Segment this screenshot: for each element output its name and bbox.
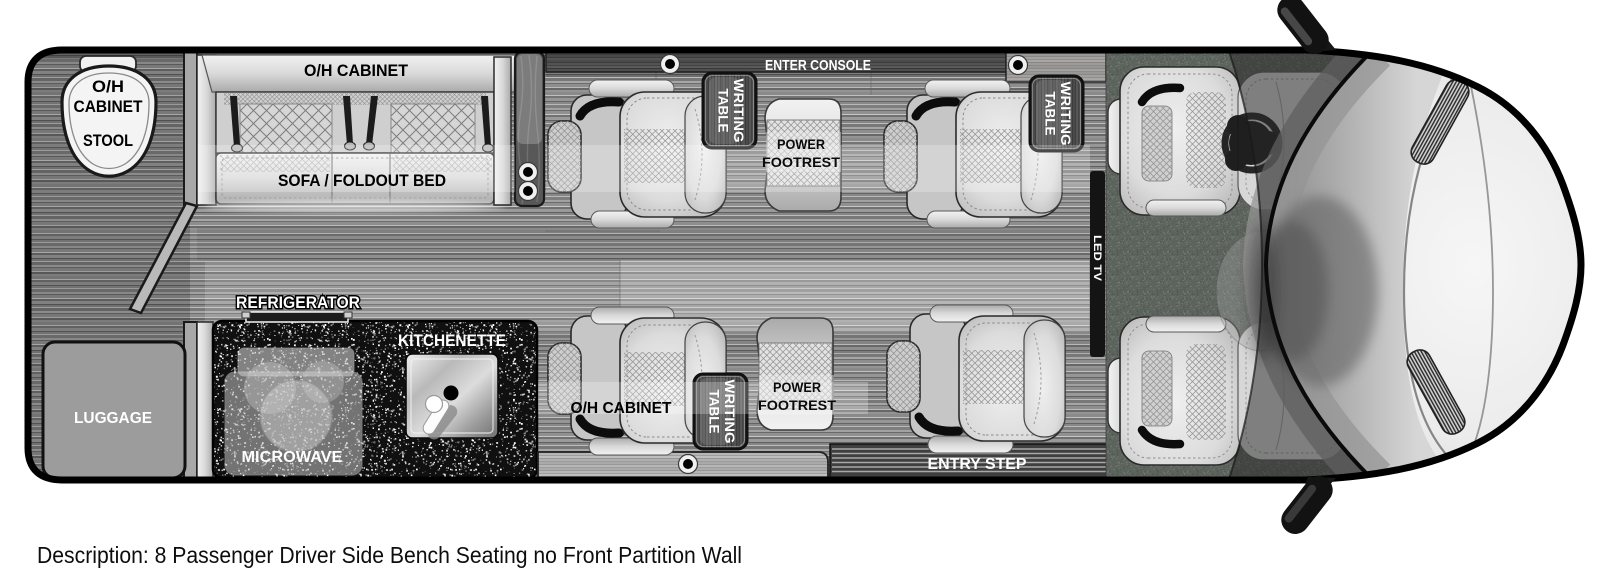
svg-text:O/H CABINET: O/H CABINET [304,62,408,80]
svg-text:ENTRY STEP: ENTRY STEP [928,456,1027,473]
svg-text:LED TV: LED TV [1091,235,1103,282]
svg-text:FOOTREST: FOOTREST [762,154,840,170]
svg-text:MICROWAVE: MICROWAVE [242,449,343,466]
svg-text:Description: 8 Passenger Drive: Description: 8 Passenger Driver Side Ben… [37,542,742,568]
svg-text:CABINET: CABINET [74,98,143,116]
svg-text:SOFA / FOLDOUT BED: SOFA / FOLDOUT BED [278,171,446,190]
svg-text:KITCHENETTE: KITCHENETTE [398,332,506,350]
svg-text:O/H: O/H [92,78,124,96]
svg-text:POWER: POWER [777,136,825,152]
svg-text:POWER: POWER [773,379,821,395]
svg-text:O/H CABINET: O/H CABINET [571,400,672,417]
svg-text:STOOL: STOOL [83,132,133,150]
svg-text:REFRIGERATOR: REFRIGERATOR [236,294,360,312]
svg-text:LUGGAGE: LUGGAGE [74,410,152,427]
svg-text:FOOTREST: FOOTREST [758,397,836,413]
svg-text:ENTER CONSOLE: ENTER CONSOLE [765,57,871,74]
